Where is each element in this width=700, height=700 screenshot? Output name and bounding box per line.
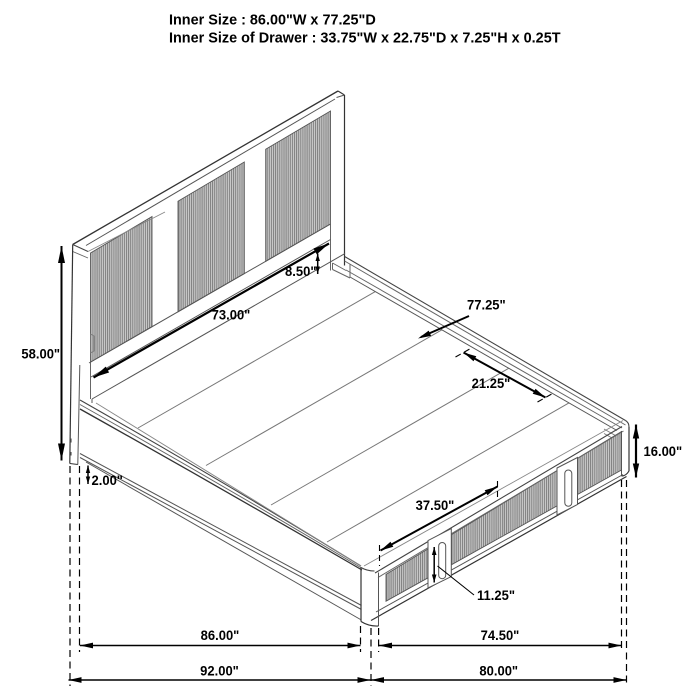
- svg-text:37.50": 37.50": [416, 498, 455, 514]
- svg-text:Inner Size of Drawer : 33.75"W: Inner Size of Drawer : 33.75"W x 22.75"D…: [169, 30, 561, 46]
- svg-text:86.00": 86.00": [201, 628, 240, 644]
- svg-text:Inner Size : 86.00"W x 77.25"D: Inner Size : 86.00"W x 77.25"D: [169, 13, 376, 29]
- svg-text:16.00": 16.00": [644, 444, 683, 460]
- svg-text:73.00": 73.00": [212, 307, 251, 323]
- svg-text:21.25": 21.25": [472, 376, 511, 392]
- svg-text:8.50": 8.50": [285, 264, 316, 280]
- svg-text:74.50": 74.50": [481, 628, 520, 644]
- svg-text:11.25": 11.25": [477, 588, 515, 604]
- svg-text:77.25": 77.25": [467, 297, 506, 313]
- svg-text:80.00": 80.00": [479, 663, 518, 679]
- svg-text:2.00": 2.00": [92, 473, 123, 489]
- svg-text:58.00": 58.00": [21, 346, 60, 362]
- svg-text:92.00": 92.00": [200, 663, 239, 679]
